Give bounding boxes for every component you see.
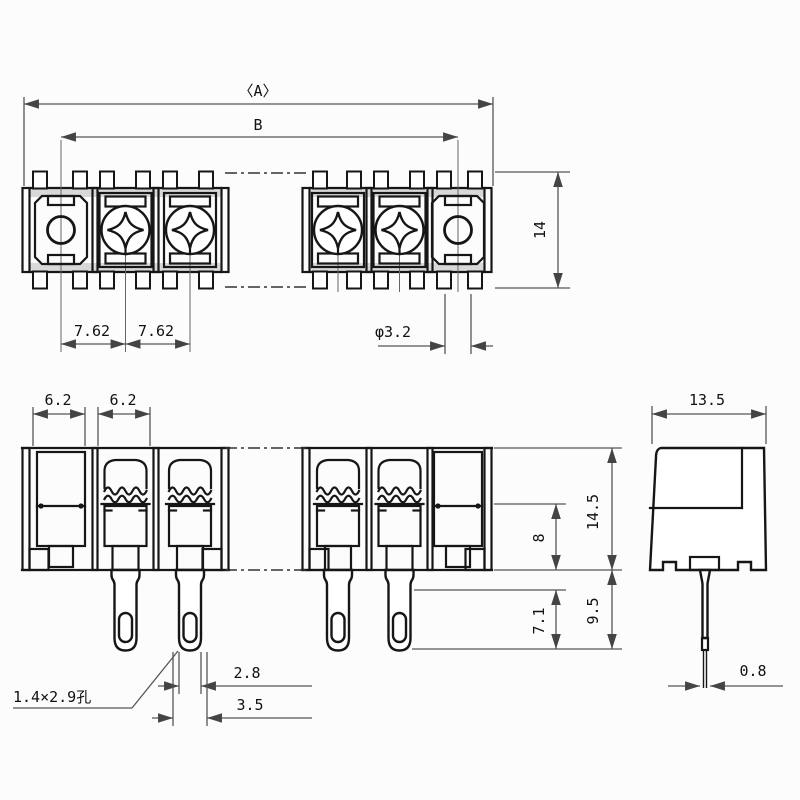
dim-pitch2-label: 7.62 bbox=[138, 322, 174, 340]
front-screw-cell-4 bbox=[376, 460, 424, 570]
dim-pin-hole-span-label: 7.1 bbox=[530, 607, 548, 634]
dim-mount-hole-dia-label: φ3.2 bbox=[375, 323, 411, 341]
solder-pin-1 bbox=[112, 570, 140, 651]
technical-drawing: 〈A〉 B 14 7.62 7.62 φ3.2 bbox=[0, 0, 800, 800]
side-view: 13.5 0.8 bbox=[650, 391, 783, 688]
dim-pin-length-label: 9.5 bbox=[584, 597, 602, 624]
dim-overall-width-label: 〈A〉 bbox=[238, 82, 277, 100]
housing-teeth-bottom bbox=[33, 272, 482, 289]
top-view: 〈A〉 B 14 7.62 7.62 φ3.2 bbox=[23, 82, 571, 354]
solder-pin-3 bbox=[324, 570, 352, 651]
dim-cell-width2-label: 6.2 bbox=[109, 391, 136, 409]
dim-clamp-depth-label: 8 bbox=[530, 533, 548, 542]
solder-pin-4 bbox=[386, 570, 414, 651]
front-screw-cell-2 bbox=[166, 460, 214, 570]
dim-pitch1-label: 7.62 bbox=[74, 322, 110, 340]
front-screw-cell-1 bbox=[102, 460, 150, 570]
drawing-page: 〈A〉 B 14 7.62 7.62 φ3.2 bbox=[0, 0, 800, 800]
solder-pin-2 bbox=[176, 570, 204, 651]
front-screw-cell-3 bbox=[314, 460, 362, 570]
dim-body-depth-label: 14 bbox=[531, 221, 549, 239]
dim-cell-width1-label: 6.2 bbox=[44, 391, 71, 409]
dim-pin-flare-label: 3.5 bbox=[236, 696, 263, 714]
dim-side-depth-label: 13.5 bbox=[689, 391, 725, 409]
housing-teeth-top bbox=[33, 172, 482, 189]
front-view: 6.2 6.2 14.5 8 9.5 7.1 2.8 3.5 1.4×2.9孔 bbox=[13, 391, 622, 726]
dim-mount-span-label: B bbox=[253, 116, 262, 134]
pin-hole-note: 1.4×2.9孔 bbox=[13, 688, 91, 706]
dim-body-height-label: 14.5 bbox=[584, 494, 602, 530]
dim-pin-width-label: 2.8 bbox=[233, 664, 260, 682]
side-solder-pin bbox=[700, 570, 710, 688]
dim-pin-thickness-label: 0.8 bbox=[739, 662, 766, 680]
